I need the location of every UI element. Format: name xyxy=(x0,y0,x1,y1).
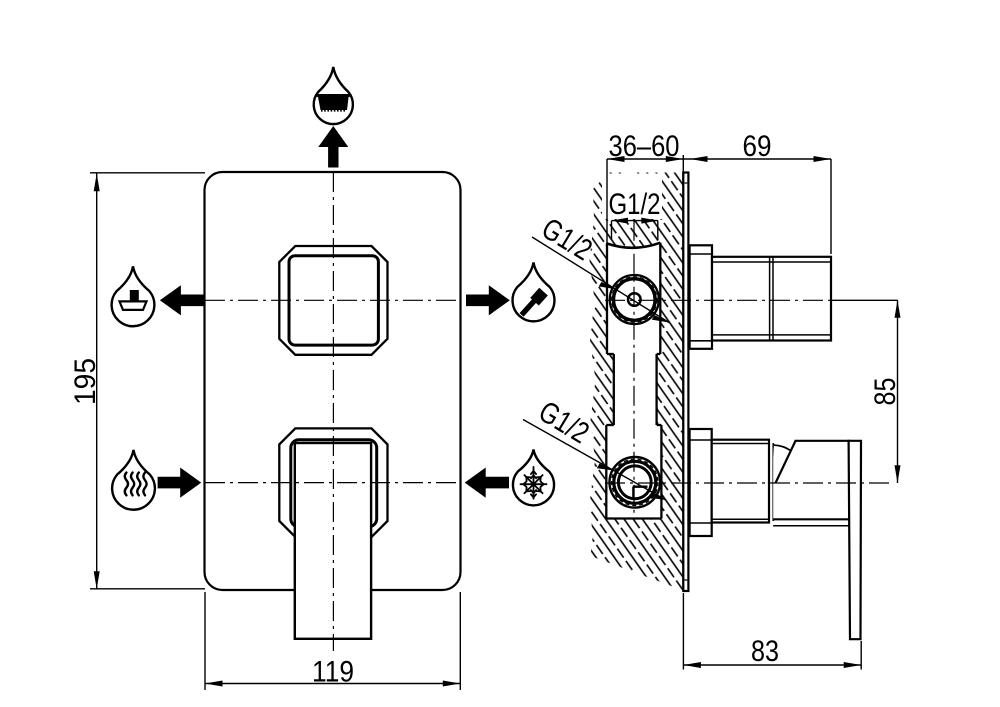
svg-text:83: 83 xyxy=(751,635,779,668)
svg-text:119: 119 xyxy=(312,656,354,689)
svg-text:195: 195 xyxy=(69,358,102,405)
svg-text:85: 85 xyxy=(869,378,902,406)
svg-text:36–60: 36–60 xyxy=(609,130,680,163)
svg-text:69: 69 xyxy=(743,130,772,163)
svg-text:G1/2: G1/2 xyxy=(609,188,661,221)
